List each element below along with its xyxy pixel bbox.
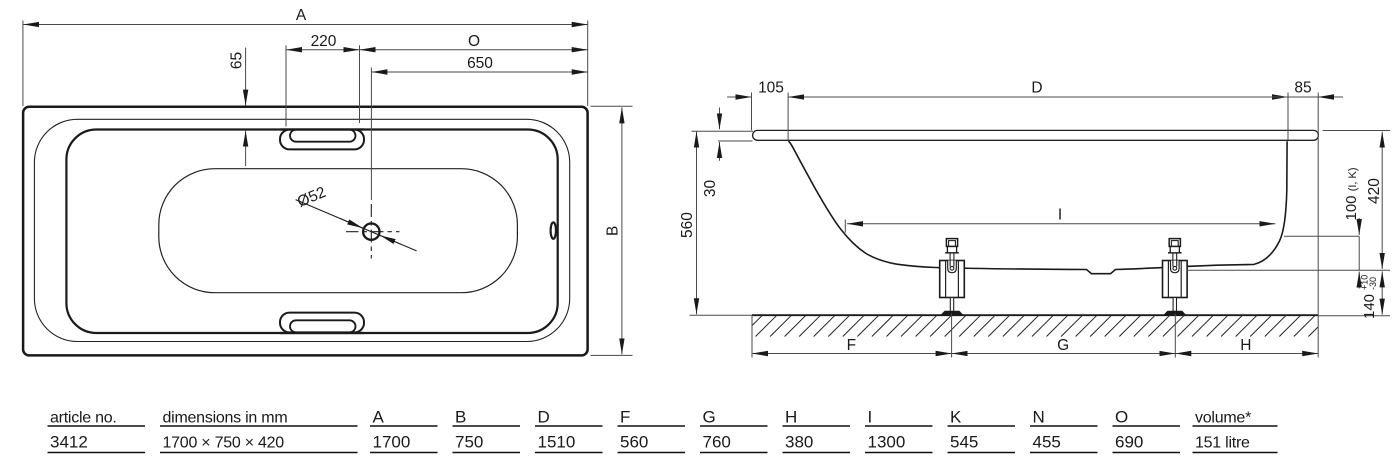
svg-text:545: 545 bbox=[950, 433, 978, 452]
svg-text:B: B bbox=[605, 226, 622, 236]
svg-text:690: 690 bbox=[1115, 433, 1143, 452]
svg-text:105: 105 bbox=[758, 80, 784, 97]
svg-text:-30: -30 bbox=[1368, 277, 1378, 290]
svg-text:O: O bbox=[468, 33, 480, 50]
svg-text:D: D bbox=[538, 408, 550, 427]
svg-text:N: N bbox=[1033, 408, 1045, 427]
svg-text:650: 650 bbox=[467, 55, 493, 72]
svg-text:O: O bbox=[1115, 408, 1128, 427]
svg-text:F: F bbox=[620, 408, 630, 427]
svg-text:455: 455 bbox=[1033, 433, 1061, 452]
svg-text:G: G bbox=[1057, 337, 1069, 354]
svg-text:220: 220 bbox=[311, 33, 337, 50]
svg-text:G: G bbox=[703, 408, 716, 427]
svg-text:dimensions in mm: dimensions in mm bbox=[163, 410, 288, 427]
svg-text:volume*: volume* bbox=[1195, 410, 1251, 427]
svg-text:65: 65 bbox=[229, 52, 246, 69]
svg-text:560: 560 bbox=[679, 212, 696, 238]
svg-text:A: A bbox=[296, 7, 307, 24]
svg-text:1700: 1700 bbox=[373, 433, 411, 452]
svg-text:K: K bbox=[950, 408, 962, 427]
svg-text:30: 30 bbox=[702, 180, 719, 198]
svg-text:F: F bbox=[847, 337, 856, 354]
svg-text:140: 140 bbox=[1361, 294, 1378, 319]
svg-text:A: A bbox=[373, 408, 385, 427]
svg-text:420: 420 bbox=[1366, 178, 1383, 204]
svg-text:151 litre: 151 litre bbox=[1195, 435, 1250, 452]
svg-text:D: D bbox=[1031, 80, 1042, 97]
svg-text:1300: 1300 bbox=[868, 433, 906, 452]
svg-text:760: 760 bbox=[703, 433, 731, 452]
svg-text:I: I bbox=[868, 408, 873, 427]
svg-text:3412: 3412 bbox=[50, 433, 88, 452]
svg-text:380: 380 bbox=[785, 433, 813, 452]
svg-text:1700 × 750 × 420: 1700 × 750 × 420 bbox=[163, 435, 285, 452]
svg-text:1510: 1510 bbox=[538, 433, 576, 452]
svg-text:B: B bbox=[455, 408, 466, 427]
svg-text:H: H bbox=[1240, 337, 1251, 354]
svg-text:750: 750 bbox=[455, 433, 483, 452]
svg-text:85: 85 bbox=[1294, 80, 1311, 97]
svg-text:article no.: article no. bbox=[50, 410, 117, 427]
svg-text:I: I bbox=[1058, 207, 1062, 224]
svg-text:H: H bbox=[785, 408, 797, 427]
svg-text:560: 560 bbox=[620, 433, 648, 452]
